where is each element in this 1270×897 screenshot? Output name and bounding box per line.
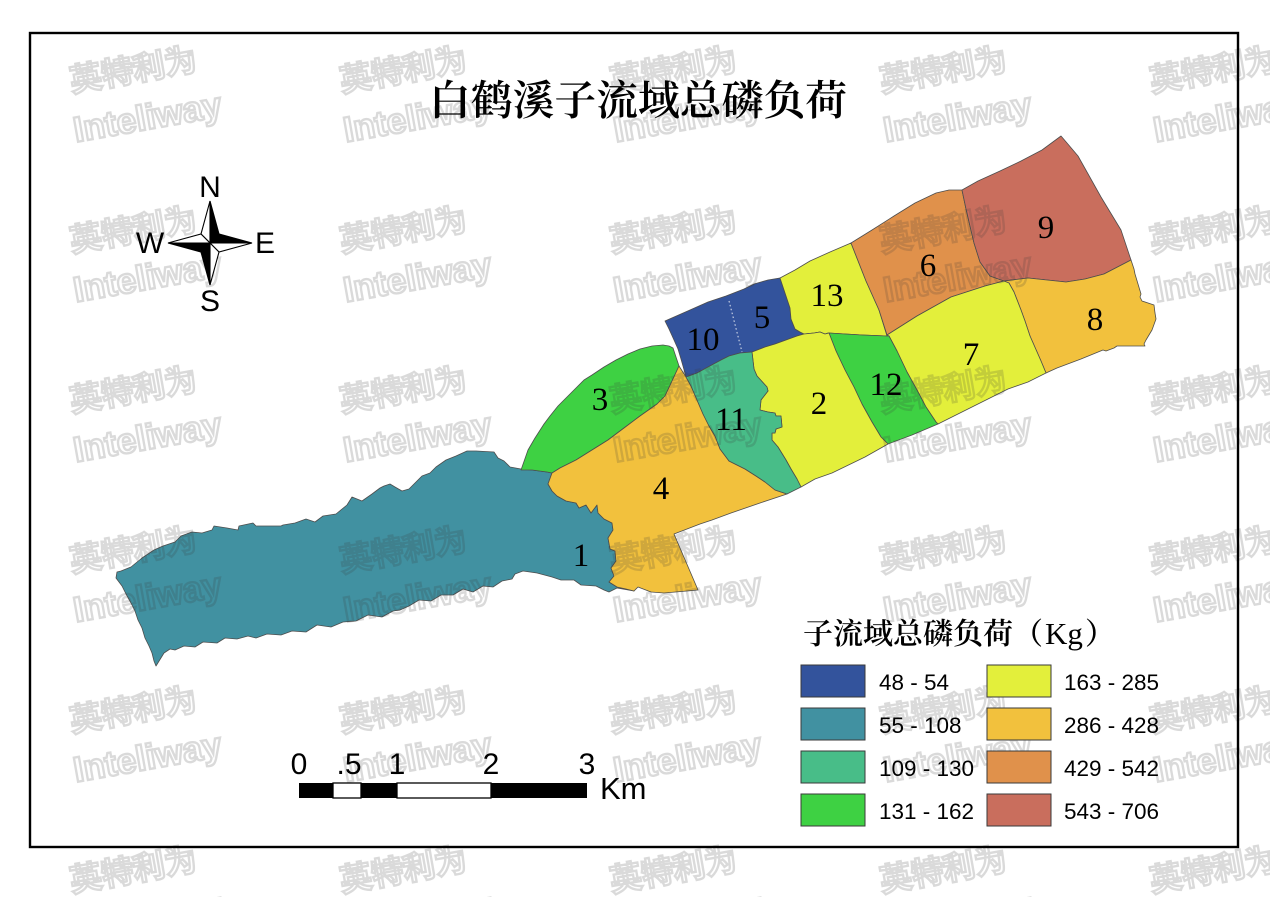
svg-text:12: 12 bbox=[870, 367, 903, 403]
svg-text:W: W bbox=[136, 227, 165, 260]
svg-text:286 - 428: 286 - 428 bbox=[1064, 713, 1159, 738]
svg-text:1: 1 bbox=[389, 748, 406, 781]
svg-text:2: 2 bbox=[811, 386, 828, 422]
svg-text:2: 2 bbox=[483, 748, 500, 781]
svg-text:131 - 162: 131 - 162 bbox=[879, 799, 974, 824]
svg-text:48 - 54: 48 - 54 bbox=[879, 670, 949, 695]
svg-text:1: 1 bbox=[573, 538, 590, 574]
svg-text:4: 4 bbox=[653, 471, 670, 507]
svg-text:163 - 285: 163 - 285 bbox=[1064, 670, 1159, 695]
svg-text:.5: .5 bbox=[336, 748, 361, 781]
svg-text:429 - 542: 429 - 542 bbox=[1064, 756, 1159, 781]
svg-text:7: 7 bbox=[963, 337, 980, 373]
svg-text:0: 0 bbox=[291, 748, 308, 781]
svg-text:6: 6 bbox=[920, 248, 937, 284]
svg-text:N: N bbox=[199, 171, 221, 204]
svg-text:5: 5 bbox=[754, 300, 771, 336]
svg-text:543 - 706: 543 - 706 bbox=[1064, 799, 1159, 824]
svg-text:55 - 108: 55 - 108 bbox=[879, 713, 962, 738]
svg-text:11: 11 bbox=[715, 402, 747, 438]
svg-text:Kg: Kg bbox=[1045, 616, 1083, 651]
svg-text:13: 13 bbox=[811, 278, 844, 314]
svg-text:109 - 130: 109 - 130 bbox=[879, 756, 974, 781]
svg-text:E: E bbox=[255, 227, 275, 260]
svg-text:10: 10 bbox=[687, 322, 720, 358]
svg-text:8: 8 bbox=[1087, 302, 1104, 338]
svg-text:3: 3 bbox=[592, 382, 609, 418]
svg-text:Km: Km bbox=[600, 771, 647, 806]
svg-text:3: 3 bbox=[579, 748, 596, 781]
svg-text:S: S bbox=[200, 285, 220, 318]
svg-text:9: 9 bbox=[1038, 210, 1055, 246]
